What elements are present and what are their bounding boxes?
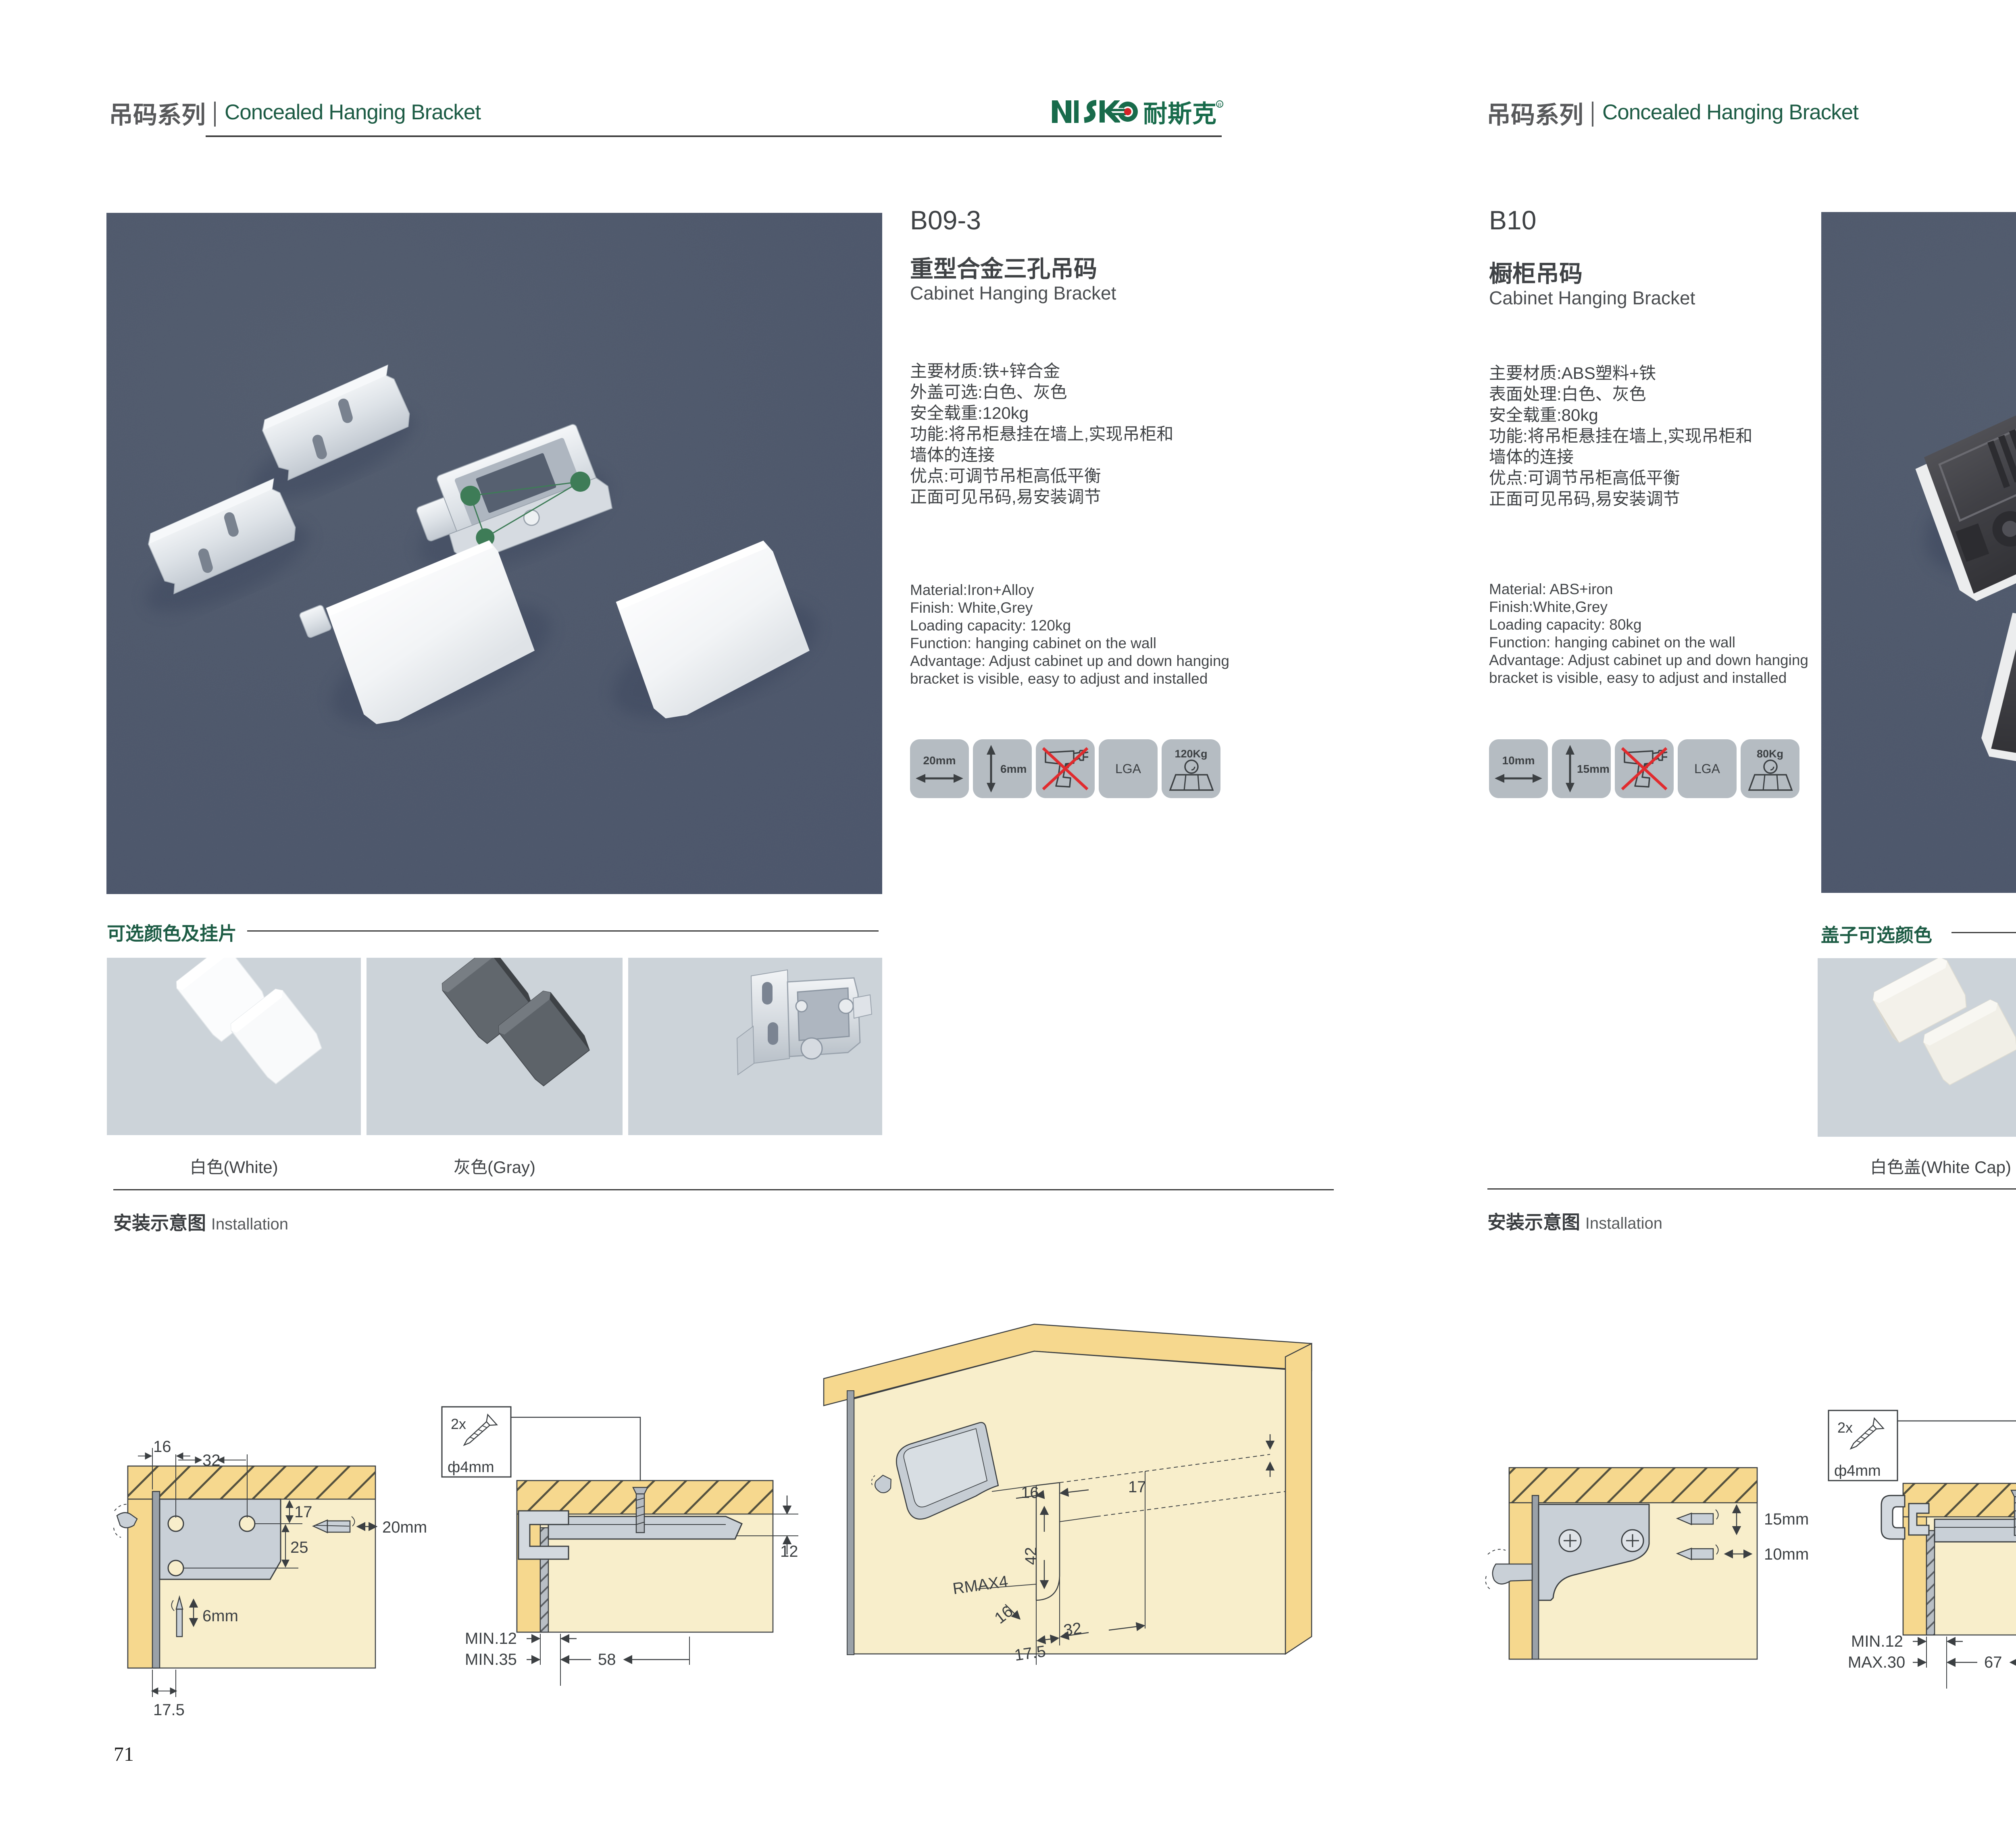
svg-text:17: 17 xyxy=(1128,1478,1146,1496)
svg-text:LGA: LGA xyxy=(1115,761,1141,776)
svg-text:120Kg: 120Kg xyxy=(1175,748,1207,760)
svg-text:25: 25 xyxy=(290,1539,308,1556)
svg-text:20mm: 20mm xyxy=(382,1518,427,1536)
svg-text:16: 16 xyxy=(153,1438,171,1456)
svg-text:LGA: LGA xyxy=(1694,761,1720,776)
svg-text:15mm: 15mm xyxy=(1577,763,1610,775)
svg-text:42: 42 xyxy=(1022,1547,1040,1565)
svg-text:2x: 2x xyxy=(451,1416,466,1432)
svg-text:17.5: 17.5 xyxy=(1013,1643,1047,1664)
svg-text:ф4mm: ф4mm xyxy=(448,1459,494,1476)
svg-text:6mm: 6mm xyxy=(1000,763,1027,775)
svg-text:32: 32 xyxy=(1062,1619,1083,1639)
svg-text:ф4mm: ф4mm xyxy=(1834,1462,1881,1479)
svg-text:6mm: 6mm xyxy=(202,1607,238,1625)
svg-text:MIN.12: MIN.12 xyxy=(465,1630,517,1647)
svg-text:16: 16 xyxy=(1021,1484,1039,1502)
svg-text:MIN.12: MIN.12 xyxy=(1851,1633,1903,1650)
svg-text:67: 67 xyxy=(1984,1654,2002,1671)
svg-text:耐斯克: 耐斯克 xyxy=(1143,100,1217,127)
svg-text:80Kg: 80Kg xyxy=(1757,748,1783,760)
svg-text:2x: 2x xyxy=(1837,1419,1853,1436)
svg-text:58: 58 xyxy=(598,1651,616,1668)
svg-text:10mm: 10mm xyxy=(1764,1545,1809,1563)
svg-text:17.5: 17.5 xyxy=(153,1701,185,1719)
svg-text:17: 17 xyxy=(294,1503,312,1521)
svg-text:12: 12 xyxy=(780,1543,798,1560)
svg-text:R: R xyxy=(1218,102,1222,108)
svg-text:10mm: 10mm xyxy=(1502,754,1535,767)
svg-text:MIN.35: MIN.35 xyxy=(465,1651,517,1668)
svg-text:MAX.30: MAX.30 xyxy=(1848,1654,1905,1671)
svg-text:15mm: 15mm xyxy=(1764,1510,1809,1528)
svg-text:20mm: 20mm xyxy=(923,754,956,767)
svg-text:32: 32 xyxy=(202,1452,221,1469)
